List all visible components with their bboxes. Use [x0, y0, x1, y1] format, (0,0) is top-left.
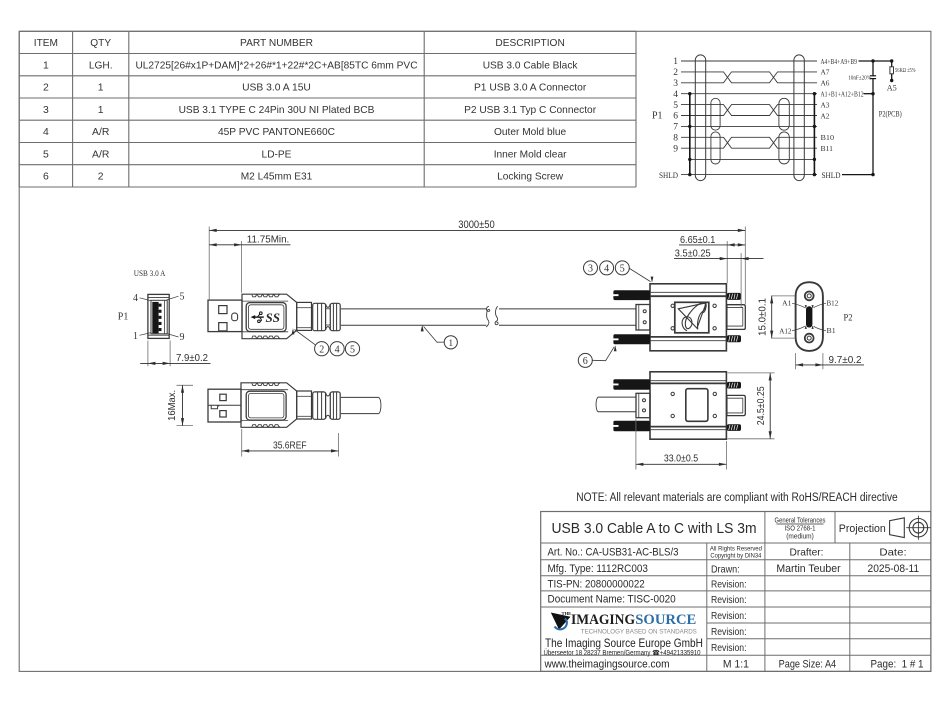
- svg-text:45P PVC PANTONE660C: 45P PVC PANTONE660C: [218, 127, 335, 138]
- svg-text:3: 3: [588, 264, 593, 275]
- svg-text:B11: B11: [821, 145, 834, 153]
- svg-text:1: 1: [133, 331, 138, 342]
- svg-text:USB 3.0 A 15U: USB 3.0 A 15U: [242, 83, 311, 94]
- svg-text:56KΩ ±5%: 56KΩ ±5%: [895, 67, 916, 74]
- svg-text:9: 9: [673, 144, 678, 154]
- svg-text:Outer Mold blue: Outer Mold blue: [494, 127, 566, 138]
- svg-text:7: 7: [673, 123, 678, 133]
- svg-text:(medium): (medium): [786, 531, 814, 540]
- svg-text:33.0±0.5: 33.0±0.5: [664, 454, 698, 465]
- svg-text:Revision:: Revision:: [711, 595, 747, 606]
- svg-text:15.0±0.1: 15.0±0.1: [757, 298, 768, 336]
- svg-text:Revision:: Revision:: [711, 611, 747, 622]
- svg-text:A/R: A/R: [92, 127, 110, 138]
- svg-text:P1: P1: [652, 110, 663, 122]
- svg-text:The Imaging Source Europe GmbH: The Imaging Source Europe GmbH: [545, 637, 703, 650]
- svg-text:6: 6: [673, 112, 678, 122]
- svg-text:5: 5: [180, 291, 185, 302]
- svg-text:16Max.: 16Max.: [167, 390, 178, 421]
- svg-text:5: 5: [620, 264, 625, 275]
- svg-text:Art. No.: CA-USB31-AC-BLS/3: Art. No.: CA-USB31-AC-BLS/3: [548, 547, 679, 559]
- svg-text:6: 6: [583, 356, 588, 367]
- svg-text:2: 2: [673, 68, 678, 78]
- svg-text:2025-08-11: 2025-08-11: [868, 563, 920, 575]
- svg-text:SHLD: SHLD: [822, 170, 841, 180]
- svg-text:B12: B12: [827, 298, 839, 307]
- svg-text:M 1:1: M 1:1: [723, 658, 749, 670]
- svg-text:A6: A6: [821, 80, 830, 88]
- svg-text:USB 3.0 A: USB 3.0 A: [134, 269, 166, 278]
- svg-text:P2(PCB): P2(PCB): [879, 109, 902, 119]
- svg-text:4: 4: [604, 264, 609, 275]
- svg-text:Page Size: A4: Page Size: A4: [779, 658, 837, 670]
- svg-text:SHLD: SHLD: [659, 170, 678, 180]
- svg-text:9.7±0.2: 9.7±0.2: [829, 355, 862, 366]
- svg-text:3: 3: [43, 105, 49, 116]
- svg-text:PART NUMBER: PART NUMBER: [240, 38, 313, 49]
- svg-text:2: 2: [319, 344, 324, 355]
- svg-text:Page: 1 # 1: Page: 1 # 1: [871, 658, 924, 670]
- svg-text:35.6REF: 35.6REF: [273, 440, 307, 451]
- svg-text:3.5±0.25: 3.5±0.25: [675, 249, 711, 260]
- svg-text:Revision:: Revision:: [711, 580, 747, 591]
- svg-text:3000±50: 3000±50: [458, 219, 495, 231]
- svg-text:4: 4: [673, 90, 678, 100]
- svg-text:UL2725[26#x1P+DAM]*2+26#*1+22#: UL2725[26#x1P+DAM]*2+26#*1+22#*2C+AB[85T…: [135, 60, 418, 71]
- svg-text:Projection: Projection: [839, 523, 886, 535]
- svg-text:5: 5: [673, 101, 678, 111]
- svg-text:5: 5: [43, 149, 49, 160]
- svg-text:Revision:: Revision:: [711, 627, 747, 638]
- svg-text:P1 USB 3.0 A Connector: P1 USB 3.0 A Connector: [474, 83, 587, 94]
- svg-text:TECHNOLOGY BASED ON STANDARDS: TECHNOLOGY BASED ON STANDARDS: [581, 629, 698, 636]
- svg-text:A4+B4+A9+B9: A4+B4+A9+B9: [821, 58, 858, 66]
- svg-text:2: 2: [98, 172, 104, 183]
- svg-text:5: 5: [350, 344, 355, 355]
- svg-text:Martin Teuber: Martin Teuber: [776, 563, 841, 575]
- svg-text:1: 1: [98, 83, 104, 94]
- svg-text:4: 4: [133, 293, 138, 304]
- svg-text:A12: A12: [779, 327, 791, 336]
- svg-text:3: 3: [673, 79, 678, 89]
- svg-text:P1: P1: [118, 311, 129, 323]
- svg-text:DESCRIPTION: DESCRIPTION: [495, 38, 564, 49]
- svg-text:Drafter:: Drafter:: [790, 548, 824, 559]
- svg-text:Drawn:: Drawn:: [711, 564, 740, 575]
- svg-text:A5: A5: [887, 84, 897, 93]
- svg-text:1: 1: [448, 339, 453, 349]
- svg-text:4: 4: [335, 344, 340, 355]
- svg-text:A/R: A/R: [92, 149, 110, 160]
- svg-text:NOTE: All relevant materials a: NOTE: All relevant materials are complia…: [576, 490, 898, 504]
- svg-text:4: 4: [43, 127, 49, 138]
- svg-text:USB 3.0 Cable Black: USB 3.0 Cable Black: [483, 60, 579, 71]
- svg-text:P2: P2: [844, 314, 853, 324]
- svg-text:B10: B10: [821, 134, 835, 142]
- svg-text:6: 6: [43, 172, 49, 183]
- svg-text:1: 1: [43, 60, 49, 71]
- svg-text:A3: A3: [821, 101, 830, 109]
- svg-text:1: 1: [98, 105, 104, 116]
- svg-text:A1+B1+A12+B12: A1+B1+A12+B12: [821, 91, 865, 99]
- svg-text:TIS-PN: 20800000022: TIS-PN: 20800000022: [548, 578, 645, 590]
- svg-text:11.75Min.: 11.75Min.: [247, 234, 289, 245]
- svg-text:Document Name: TISC-0020: Document Name: TISC-0020: [548, 594, 676, 606]
- svg-text:A7: A7: [821, 69, 830, 77]
- svg-text:Locking Screw: Locking Screw: [497, 172, 563, 183]
- svg-text:2: 2: [43, 83, 49, 94]
- svg-text:Mfg. Type: 1112RC003: Mfg. Type: 1112RC003: [548, 563, 648, 575]
- svg-text:M2 L45mm E31: M2 L45mm E31: [241, 172, 313, 183]
- svg-text:Copyright by DIN34: Copyright by DIN34: [710, 552, 762, 559]
- svg-text:A2: A2: [821, 112, 830, 120]
- svg-text:10nF±20%: 10nF±20%: [848, 74, 871, 81]
- svg-text:Inner Mold clear: Inner Mold clear: [494, 149, 567, 160]
- svg-text:1: 1: [673, 57, 678, 67]
- svg-text:6.65±0.1: 6.65±0.1: [680, 235, 715, 246]
- svg-text:LD-PE: LD-PE: [262, 149, 292, 160]
- svg-text:P2 USB 3.1 Typ C Connector: P2 USB 3.1 Typ C Connector: [464, 105, 597, 116]
- svg-text:Überseetor 18 28237 Bremen/Ger: Überseetor 18 28237 Bremen/Germany ☎+494…: [544, 649, 701, 657]
- svg-text:All Rights Reserved: All Rights Reserved: [710, 545, 763, 552]
- svg-text:IMAGING: IMAGING: [571, 612, 635, 628]
- svg-text:USB 3.1 TYPE C 24Pin 30U NI Pl: USB 3.1 TYPE C 24Pin 30U NI Plated BCB: [179, 105, 375, 116]
- svg-text:A1: A1: [782, 298, 792, 307]
- svg-text:ITEM: ITEM: [34, 38, 58, 49]
- svg-text:THE: THE: [562, 611, 572, 616]
- svg-text:B1: B1: [827, 326, 836, 335]
- svg-text:www.theimagingsource.com: www.theimagingsource.com: [544, 658, 670, 670]
- svg-text:SOURCE: SOURCE: [635, 612, 696, 628]
- svg-text:8: 8: [673, 134, 678, 144]
- svg-text:24.5±0.25: 24.5±0.25: [756, 386, 767, 425]
- svg-text:QTY: QTY: [90, 38, 111, 49]
- svg-text:USB 3.0 Cable A to C with LS 3: USB 3.0 Cable A to C with LS 3m: [552, 520, 757, 537]
- svg-text:Date:: Date:: [879, 548, 906, 559]
- svg-text:Revision:: Revision:: [711, 643, 747, 654]
- svg-text:LGH.: LGH.: [89, 60, 113, 71]
- svg-text:SS: SS: [266, 310, 280, 325]
- svg-text:7.9±0.2: 7.9±0.2: [176, 353, 208, 364]
- svg-text:9: 9: [180, 332, 185, 343]
